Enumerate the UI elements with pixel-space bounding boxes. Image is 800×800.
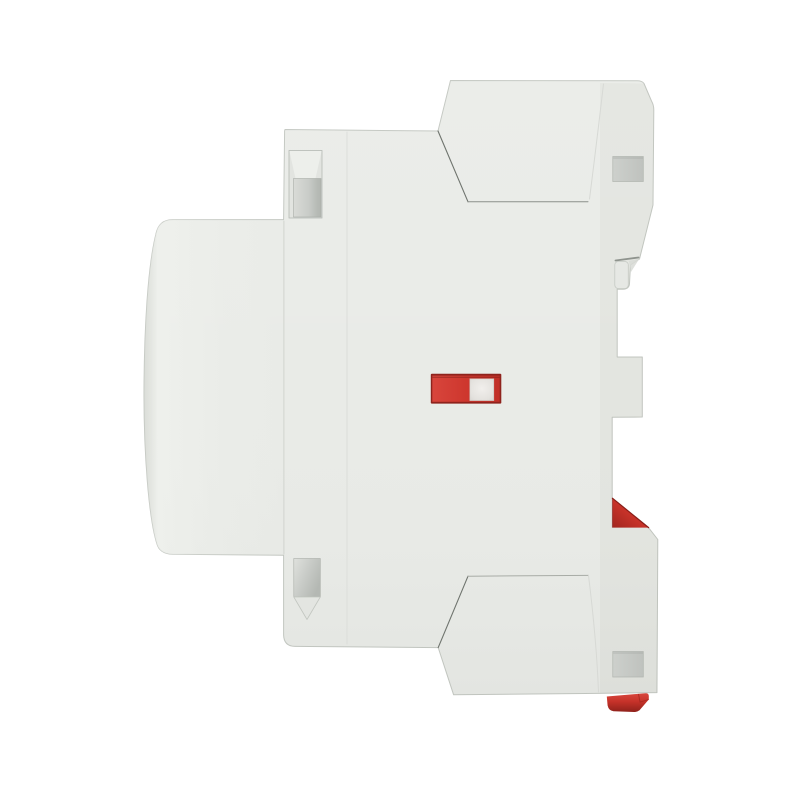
- top-left-mounting-slot: [289, 151, 322, 219]
- switch-indicator-slider: [470, 379, 494, 401]
- slot-cavity: [294, 179, 322, 218]
- front-bulge: [144, 220, 284, 556]
- din-rail-clip-tab: [615, 258, 640, 289]
- red-bottom-clip: [607, 693, 649, 712]
- bottom-right-mounting-hole: [613, 652, 644, 678]
- top-right-mounting-hole: [613, 157, 644, 182]
- switch-indicator-window: [431, 374, 502, 404]
- slot-cavity: [294, 559, 321, 598]
- tab-face: [615, 262, 629, 289]
- contactor-body: [140, 78, 662, 714]
- bottom-clip-face: [607, 693, 649, 712]
- red-wedge-clip: [612, 498, 648, 527]
- product-photo-canvas: [0, 0, 800, 800]
- hole-cavity: [613, 157, 644, 182]
- contactor-side-view: [0, 0, 800, 800]
- hole-cavity: [613, 652, 644, 678]
